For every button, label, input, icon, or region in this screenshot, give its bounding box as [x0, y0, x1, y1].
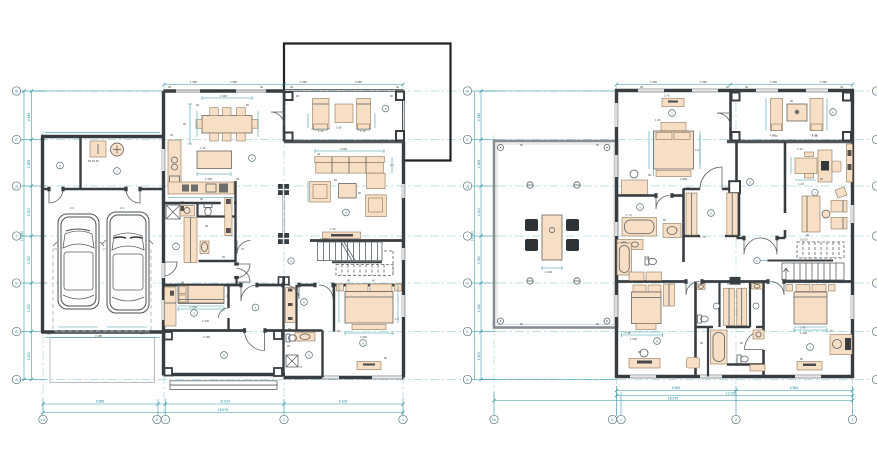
svg-text:11x30: 11x30 [320, 237, 328, 241]
svg-text:2 350: 2 350 [27, 256, 31, 265]
svg-text:60: 60 [334, 178, 338, 182]
svg-text:1 40: 1 40 [318, 129, 324, 133]
svg-text:1 48: 1 48 [625, 331, 631, 335]
svg-text:60: 60 [372, 279, 376, 283]
svg-text:10x30: 10x30 [800, 238, 808, 242]
svg-text:Г: Г [467, 235, 469, 239]
svg-text:2 980: 2 980 [820, 80, 827, 84]
svg-text:40: 40 [646, 257, 650, 261]
svg-text:60: 60 [687, 186, 691, 190]
svg-text:3: 3 [402, 418, 404, 422]
svg-text:2 0: 2 0 [120, 206, 124, 210]
svg-text:11 610: 11 610 [220, 400, 230, 404]
svg-text:80: 80 [384, 356, 388, 360]
svg-text:40: 40 [840, 85, 844, 89]
svg-text:1 600: 1 600 [190, 305, 197, 309]
svg-text:1 400: 1 400 [800, 331, 807, 335]
svg-text:1 400: 1 400 [545, 270, 552, 274]
svg-text:2: 2 [283, 418, 285, 422]
svg-text:60: 60 [347, 279, 351, 283]
svg-text:60: 60 [196, 103, 200, 107]
svg-text:1 70: 1 70 [626, 213, 632, 217]
svg-text:1 980: 1 980 [650, 80, 657, 84]
svg-text:2: 2 [735, 418, 737, 422]
svg-text:60: 60 [740, 341, 744, 345]
svg-text:90: 90 [290, 85, 294, 89]
svg-text:40: 40 [260, 85, 264, 89]
svg-text:2 0: 2 0 [70, 206, 74, 210]
svg-text:6 860: 6 860 [790, 386, 799, 390]
svg-text:60: 60 [725, 186, 729, 190]
svg-text:40: 40 [140, 332, 144, 336]
svg-text:60: 60 [520, 143, 524, 147]
svg-text:60: 60 [246, 103, 250, 107]
svg-text:2 980: 2 980 [700, 80, 707, 84]
svg-text:60: 60 [520, 322, 524, 326]
svg-text:60: 60 [170, 133, 174, 137]
svg-text:2 400: 2 400 [477, 352, 481, 361]
svg-text:2 350: 2 350 [477, 256, 481, 265]
svg-text:60: 60 [820, 177, 824, 181]
svg-text:1 800: 1 800 [680, 177, 687, 181]
svg-text:1 80: 1 80 [655, 118, 661, 122]
svg-text:40: 40 [396, 85, 400, 89]
svg-text:60: 60 [790, 99, 794, 103]
svg-text:1 40: 1 40 [664, 94, 670, 98]
svg-text:1: 1 [165, 418, 167, 422]
svg-text:3: 3 [852, 418, 854, 422]
svg-text:80: 80 [638, 350, 642, 354]
svg-text:90: 90 [296, 94, 300, 98]
svg-text:1 70: 1 70 [700, 235, 706, 239]
svg-text:2 980: 2 980 [355, 80, 362, 84]
svg-text:2 0: 2 0 [395, 317, 399, 321]
svg-text:1 40: 1 40 [200, 146, 206, 150]
svg-text:60: 60 [815, 280, 819, 284]
svg-text:60: 60 [236, 177, 240, 181]
svg-text:1А: 1А [41, 418, 46, 422]
svg-text:5 100: 5 100 [339, 400, 348, 404]
svg-text:60: 60 [596, 322, 600, 326]
svg-text:1 980: 1 980 [190, 80, 197, 84]
svg-text:1 800: 1 800 [360, 335, 367, 339]
svg-text:60: 60 [797, 280, 801, 284]
svg-text:2 465: 2 465 [477, 160, 481, 169]
svg-text:80: 80 [800, 357, 804, 361]
svg-text:40: 40 [226, 294, 230, 298]
svg-text:1А: 1А [492, 418, 497, 422]
svg-text:2 465: 2 465 [27, 160, 31, 169]
svg-text:60: 60 [646, 280, 650, 284]
svg-text:60: 60 [648, 173, 652, 177]
svg-text:2 645: 2 645 [477, 113, 481, 122]
svg-text:3 185: 3 185 [95, 334, 102, 338]
svg-text:90: 90 [183, 122, 187, 126]
svg-text:60: 60 [390, 94, 394, 98]
svg-text:Г: Г [16, 235, 18, 239]
svg-text:2 430: 2 430 [477, 304, 481, 313]
svg-text:90: 90 [181, 281, 185, 285]
svg-text:40: 40 [317, 152, 321, 156]
svg-text:50: 50 [288, 327, 292, 331]
svg-text:6 860: 6 860 [672, 386, 681, 390]
svg-text:90: 90 [181, 200, 185, 204]
svg-text:2 980: 2 980 [230, 80, 237, 84]
svg-text:60: 60 [663, 218, 667, 222]
svg-text:1 40: 1 40 [360, 129, 366, 133]
svg-text:60: 60 [287, 344, 291, 348]
svg-text:2 645: 2 645 [27, 113, 31, 122]
svg-text:90: 90 [168, 85, 172, 89]
svg-text:60: 60 [596, 143, 600, 147]
svg-text:1 40: 1 40 [797, 147, 803, 151]
svg-text:1 600: 1 600 [630, 337, 637, 341]
svg-text:1 980: 1 980 [300, 80, 307, 84]
svg-text:185: 185 [47, 332, 52, 336]
svg-text:60: 60 [753, 281, 757, 285]
svg-text:2 0: 2 0 [695, 148, 699, 152]
svg-text:60 60 60: 60 60 60 [88, 159, 99, 163]
svg-text:90: 90 [806, 233, 810, 237]
svg-text:1: 1 [620, 418, 622, 422]
svg-text:2 40: 2 40 [330, 227, 336, 231]
svg-text:3 000: 3 000 [340, 147, 347, 151]
svg-text:18 675: 18 675 [218, 408, 228, 412]
svg-text:2 400: 2 400 [220, 94, 227, 98]
svg-text:2 500: 2 500 [477, 208, 481, 217]
svg-text:60: 60 [727, 282, 731, 286]
svg-text:1 40: 1 40 [800, 326, 806, 330]
svg-text:90: 90 [745, 85, 749, 89]
svg-text:1 200: 1 200 [202, 319, 209, 323]
svg-text:6 855: 6 855 [96, 400, 105, 404]
svg-text:18 675: 18 675 [668, 397, 678, 401]
svg-text:90: 90 [700, 341, 704, 345]
svg-text:1 980: 1 980 [770, 80, 777, 84]
svg-text:90: 90 [640, 85, 644, 89]
svg-text:60: 60 [624, 280, 628, 284]
svg-text:1 40: 1 40 [772, 134, 778, 138]
svg-text:1 40: 1 40 [798, 182, 804, 186]
svg-text:90: 90 [358, 191, 362, 195]
svg-text:2 400: 2 400 [27, 352, 31, 361]
svg-text:60: 60 [830, 329, 834, 333]
svg-text:70: 70 [299, 365, 303, 369]
svg-text:90: 90 [337, 329, 341, 333]
svg-text:90: 90 [205, 224, 209, 228]
svg-text:2 430: 2 430 [27, 304, 31, 313]
svg-text:60: 60 [200, 197, 204, 201]
svg-text:3 185: 3 185 [203, 335, 210, 339]
svg-text:2 500: 2 500 [27, 208, 31, 217]
svg-text:1 40: 1 40 [812, 134, 818, 138]
svg-text:70: 70 [241, 247, 245, 251]
svg-text:1 60: 1 60 [336, 126, 342, 130]
svg-text:1 900: 1 900 [205, 177, 212, 181]
svg-text:60: 60 [222, 255, 226, 259]
